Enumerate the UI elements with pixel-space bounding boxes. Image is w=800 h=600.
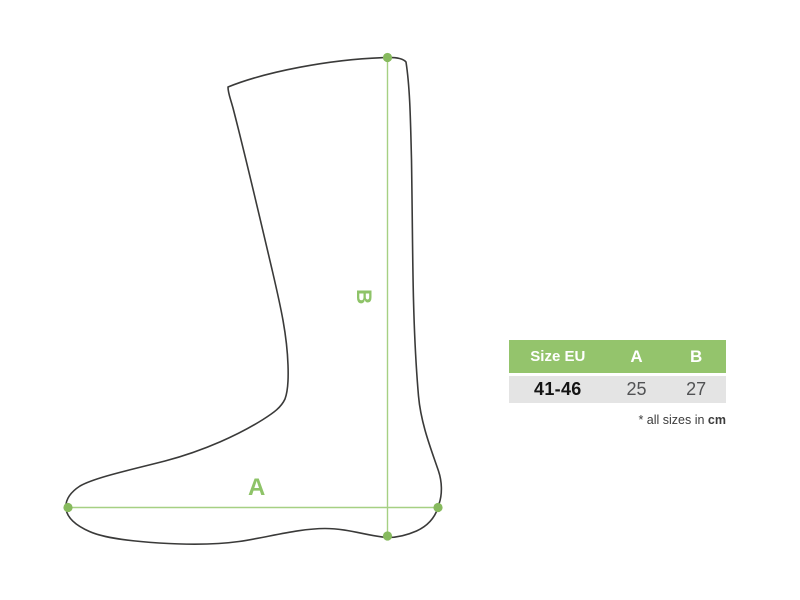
sock-outline [66, 57, 442, 544]
size-table: Size EU A B 41-46 25 27 * all sizes in c… [509, 340, 726, 427]
size-table-header-row: Size EU A B [509, 340, 726, 373]
measure-dot-b-bottom [383, 531, 392, 540]
units-note-unit: cm [708, 413, 726, 427]
measure-dot-a-right [433, 503, 442, 512]
measure-dot-a-left [63, 503, 72, 512]
measurement-label-a: A [248, 474, 266, 502]
size-table-data-row: 41-46 25 27 [509, 376, 726, 403]
cell-a-value: 25 [607, 376, 667, 403]
measurement-label-b: B [350, 284, 376, 310]
measure-dot-b-top [383, 53, 392, 62]
units-note: * all sizes in cm [509, 413, 726, 427]
sock-measurement-diagram [0, 0, 800, 600]
cell-size-eu: 41-46 [509, 376, 607, 403]
header-a: A [607, 340, 667, 373]
header-b: B [666, 340, 726, 373]
size-chart-page: A B Size EU A B 41-46 25 27 * all sizes … [0, 0, 800, 600]
units-note-text: * all sizes in [638, 413, 707, 427]
header-size-eu: Size EU [509, 340, 607, 373]
cell-b-value: 27 [666, 376, 726, 403]
